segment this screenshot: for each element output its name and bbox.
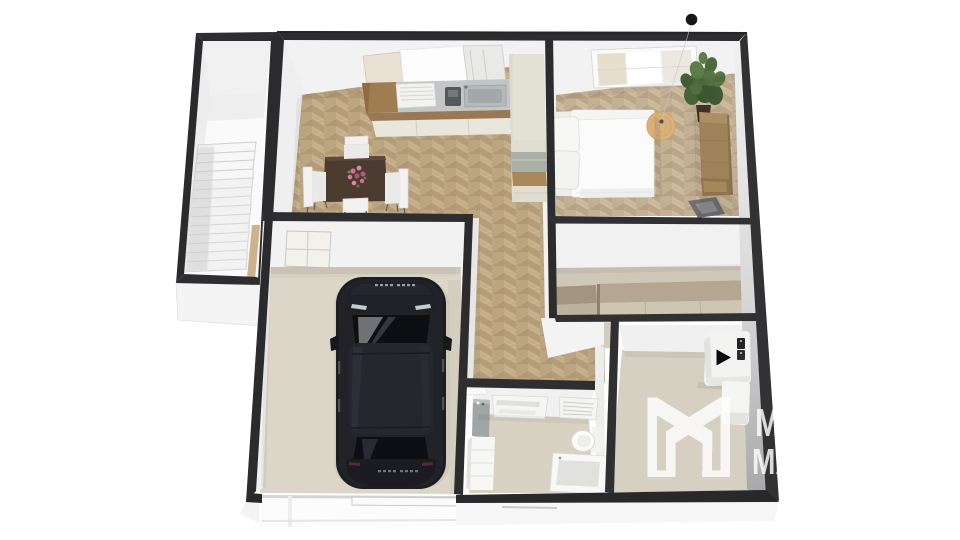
- svg-text:MAKLER: MAKLER: [752, 442, 872, 482]
- svg-text:MC: MC: [755, 401, 802, 444]
